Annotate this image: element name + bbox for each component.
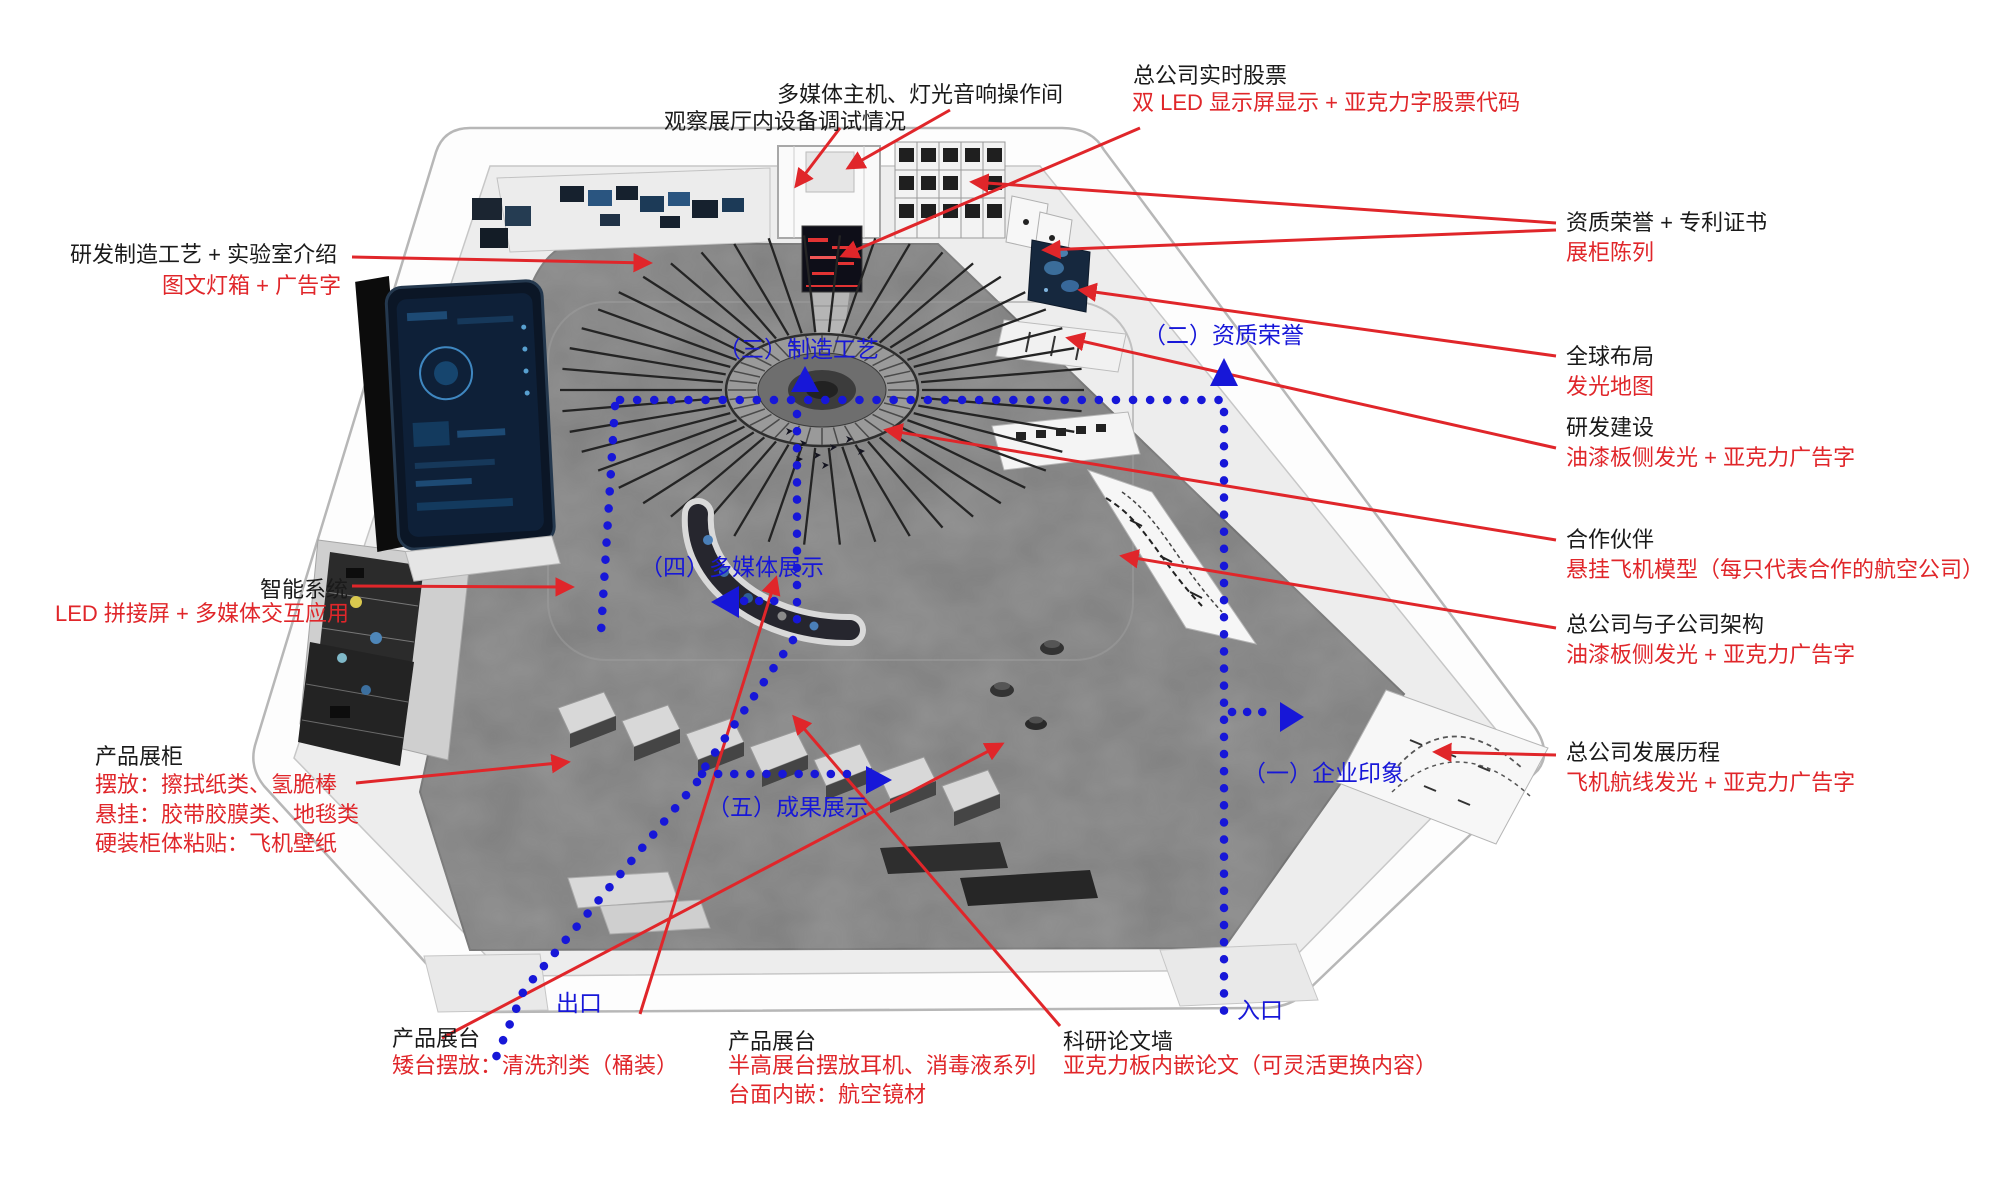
zone-label-4: （四）多媒体展示 bbox=[640, 554, 824, 580]
label-cabinet-line1: 摆放：擦拭纸类、氢脆棒 bbox=[95, 772, 337, 797]
label-stand-left-title: 产品展台 bbox=[392, 1026, 480, 1051]
exit-label: 出口 bbox=[556, 990, 602, 1016]
floor bbox=[420, 244, 1404, 950]
label-org-desc: 油漆板侧发光 + 亚克力广告字 bbox=[1566, 642, 1855, 667]
exhibition-layout-diagram: 多媒体主机、灯光音响操作间 观察展厅内设备调试情况 总公司实时股票 双 LED … bbox=[0, 0, 2000, 1187]
label-lab-title: 研发制造工艺 + 实验室介绍 bbox=[70, 242, 337, 267]
exit-opening bbox=[424, 954, 548, 1012]
stock-led-screen bbox=[802, 226, 862, 292]
label-cabinet-title: 产品展柜 bbox=[95, 744, 183, 769]
label-cabinet-line3: 硬装柜体粘贴：飞机壁纸 bbox=[95, 831, 337, 856]
label-control-room-line1: 多媒体主机、灯光音响操作间 bbox=[777, 82, 1063, 107]
label-partners-title: 合作伙伴 bbox=[1566, 527, 1654, 552]
label-honors-desc: 展柜陈列 bbox=[1566, 240, 1654, 265]
label-stock-desc: 双 LED 显示屏显示 + 亚克力字股票代码 bbox=[1132, 90, 1520, 115]
label-control-room-line2: 观察展厅内设备调试情况 bbox=[664, 109, 906, 134]
zone-label-5: （五）成果展示 bbox=[707, 794, 868, 820]
label-smart-desc: LED 拼接屏 + 多媒体交互应用 bbox=[55, 601, 349, 626]
lightbox-wall bbox=[472, 168, 770, 252]
label-map-title: 全球布局 bbox=[1566, 344, 1654, 369]
label-paper-wall-title: 科研论文墙 bbox=[1063, 1029, 1173, 1054]
label-honors-title: 资质荣誉 + 专利证书 bbox=[1566, 210, 1767, 235]
label-smart-title: 智能系统 bbox=[260, 577, 348, 602]
label-history-desc: 飞机航线发光 + 亚克力广告字 bbox=[1566, 770, 1855, 795]
label-stand-center-line1: 半高展台摆放耳机、消毒液系列 bbox=[728, 1053, 1036, 1078]
label-partners-desc: 悬挂飞机模型（每只代表合作的航空公司） bbox=[1566, 557, 1984, 582]
label-org-title: 总公司与子公司架构 bbox=[1566, 612, 1764, 637]
leader-smart bbox=[352, 586, 572, 587]
label-stand-center-line2: 台面内嵌：航空镜材 bbox=[728, 1082, 926, 1107]
zone-label-3: （三）制造工艺 bbox=[718, 336, 879, 362]
label-rd-title: 研发建设 bbox=[1566, 415, 1654, 440]
label-lab-desc: 图文灯箱 + 广告字 bbox=[162, 273, 341, 298]
label-stand-left-desc: 矮台摆放：清洗剂类（桶装） bbox=[392, 1053, 678, 1078]
entrance-label: 入口 bbox=[1237, 997, 1283, 1023]
label-stand-center-title: 产品展台 bbox=[728, 1029, 816, 1054]
label-cabinet-line2: 悬挂：胶带胶膜类、地毯类 bbox=[95, 802, 359, 827]
label-rd-desc: 油漆板侧发光 + 亚克力广告字 bbox=[1566, 445, 1855, 470]
zone-label-2: （二）资质荣誉 bbox=[1143, 322, 1304, 348]
honors-shelving bbox=[895, 142, 1005, 238]
label-stock-title: 总公司实时股票 bbox=[1133, 63, 1287, 88]
label-paper-wall-desc: 亚克力板内嵌论文（可灵活更换内容） bbox=[1063, 1053, 1437, 1078]
label-map-desc: 发光地图 bbox=[1566, 374, 1654, 399]
big-led-screen bbox=[355, 268, 561, 584]
label-history-title: 总公司发展历程 bbox=[1566, 740, 1720, 765]
zone-label-1: （一）企业印象 bbox=[1243, 760, 1404, 786]
